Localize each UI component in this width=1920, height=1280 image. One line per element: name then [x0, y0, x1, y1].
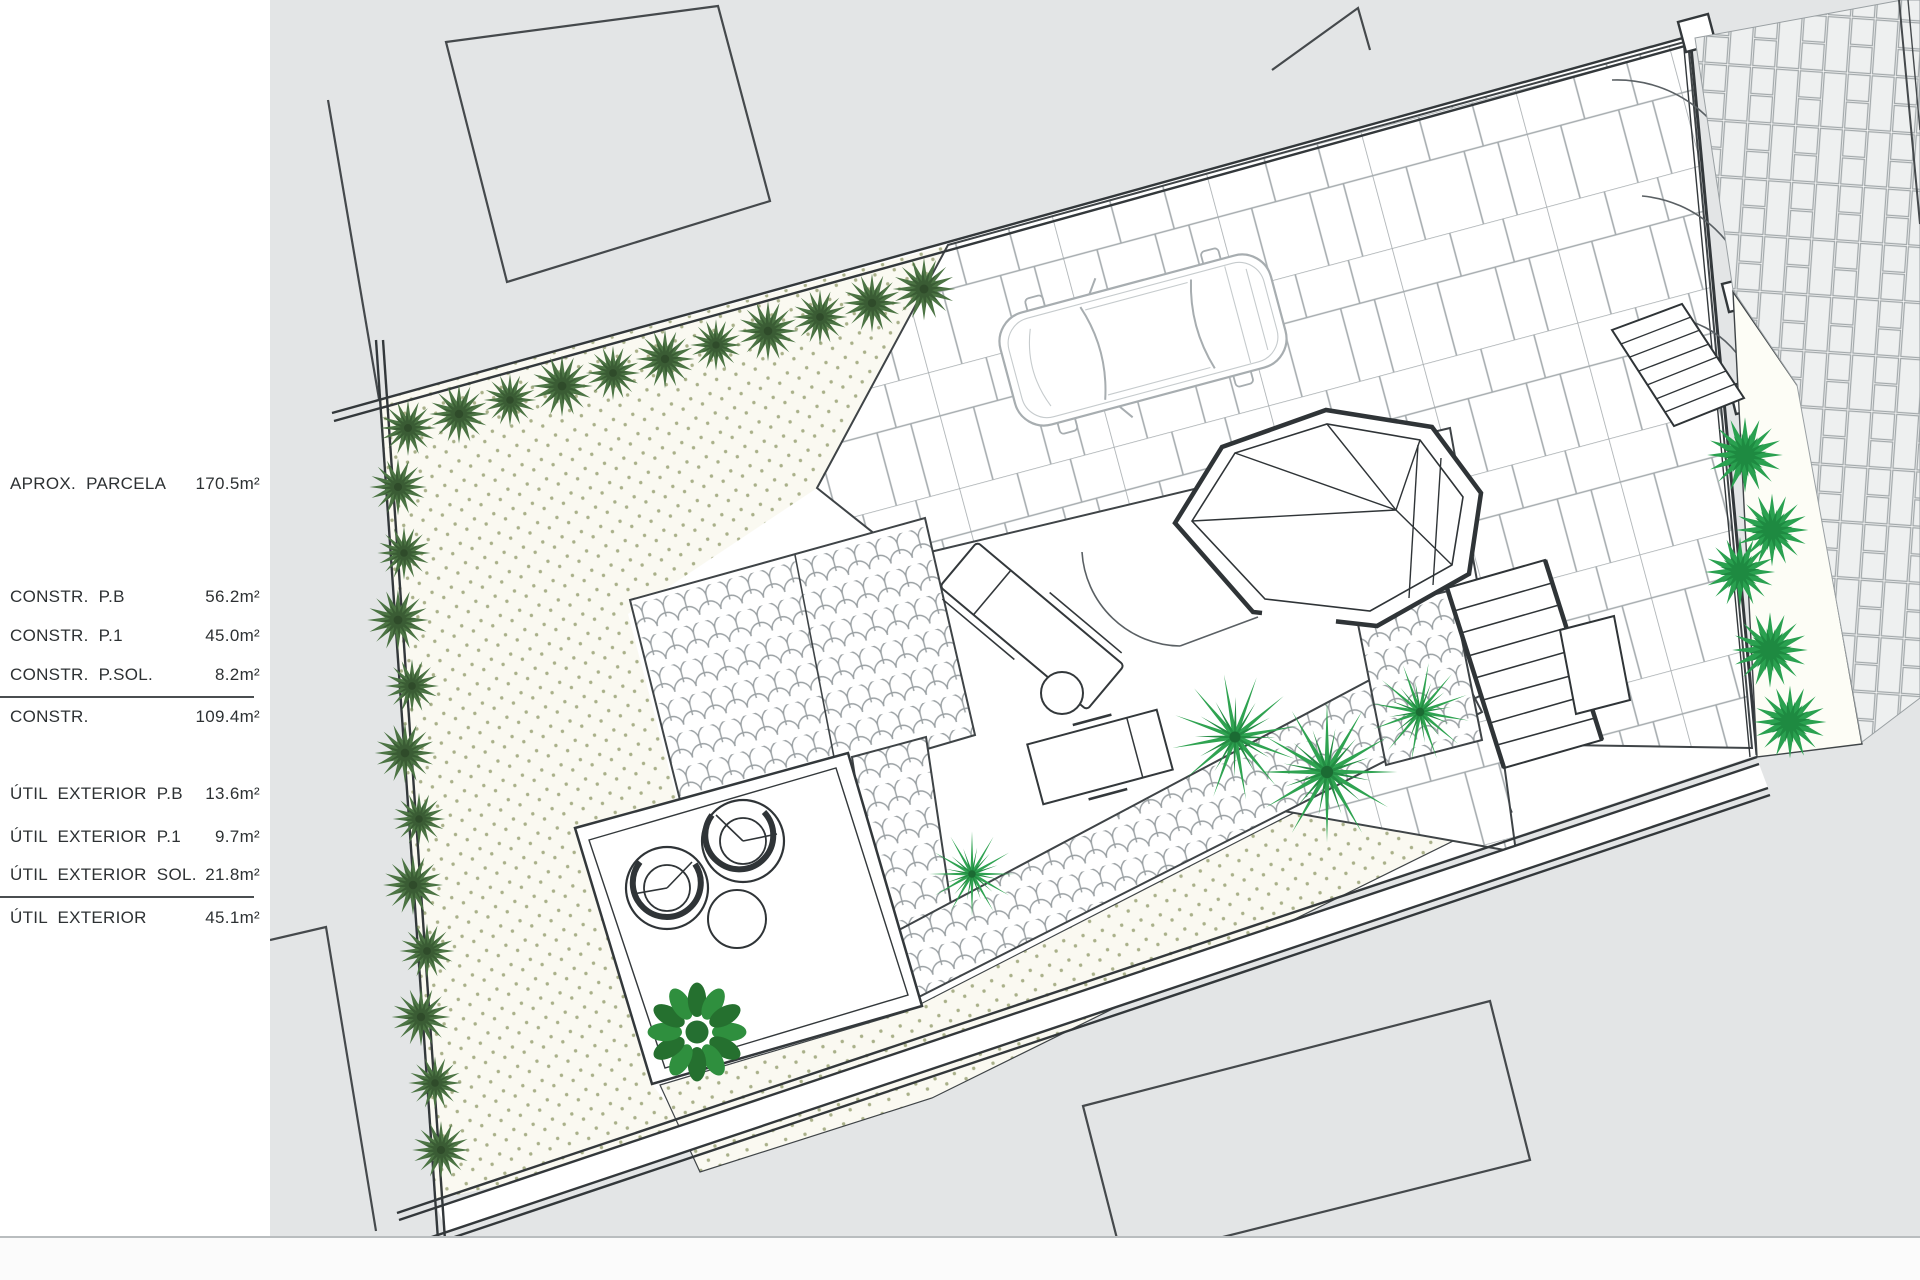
row-value: 109.4m²	[196, 707, 260, 727]
row-label: ÚTIL EXTERIOR SOL.	[10, 865, 197, 885]
legend-row-parcela: APROX. PARCELA 170.5m²	[10, 474, 260, 494]
row-value: 9.7m²	[215, 827, 260, 847]
row-label: CONSTR. P.B	[10, 587, 125, 607]
legend-row-constr-total: CONSTR. 109.4m²	[10, 707, 260, 727]
legend-row-constr-pb: CONSTR. P.B 56.2m²	[10, 587, 260, 607]
legend-row-util-pb: ÚTIL EXTERIOR P.B 13.6m²	[10, 784, 260, 804]
legend-row-util-p1: ÚTIL EXTERIOR P.1 9.7m²	[10, 827, 260, 847]
row-label: ÚTIL EXTERIOR P.B	[10, 784, 183, 804]
page-bottom-strip	[0, 1238, 1920, 1280]
legend-row-constr-p1: CONSTR. P.1 45.0m²	[10, 626, 260, 646]
wicker-chair	[702, 800, 784, 882]
row-value: 56.2m²	[205, 587, 260, 607]
row-value: 170.5m²	[196, 474, 260, 494]
row-label: APROX. PARCELA	[10, 474, 166, 494]
row-value: 21.8m²	[205, 865, 260, 885]
row-label: ÚTIL EXTERIOR	[10, 908, 147, 928]
row-value: 45.0m²	[205, 626, 260, 646]
legend-divider	[0, 696, 254, 698]
row-label: ÚTIL EXTERIOR P.1	[10, 827, 181, 847]
legend-row-util-sol: ÚTIL EXTERIOR SOL. 21.8m²	[10, 865, 260, 885]
row-label: CONSTR.	[10, 707, 89, 727]
row-value: 13.6m²	[205, 784, 260, 804]
area-schedule: APROX. PARCELA 170.5m² CONSTR. P.B 56.2m…	[0, 0, 270, 1280]
row-value: 45.1m²	[205, 908, 260, 928]
wicker-chair	[626, 847, 708, 929]
page: APROX. PARCELA 170.5m² CONSTR. P.B 56.2m…	[0, 0, 1920, 1280]
row-label: CONSTR. P.SOL.	[10, 665, 153, 685]
legend-row-util-total: ÚTIL EXTERIOR 45.1m²	[10, 908, 260, 928]
row-label: CONSTR. P.1	[10, 626, 123, 646]
legend-divider	[0, 896, 254, 898]
side-table	[1041, 672, 1083, 714]
patio-table	[708, 890, 766, 948]
site-plan-drawing	[0, 0, 1920, 1280]
legend-row-constr-psol: CONSTR. P.SOL. 8.2m²	[10, 665, 260, 685]
row-value: 8.2m²	[215, 665, 260, 685]
